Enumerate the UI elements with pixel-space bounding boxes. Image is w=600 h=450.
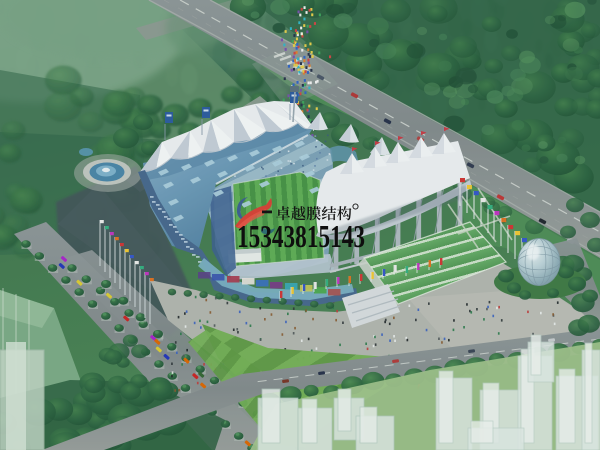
- svg-text:15343815143: 15343815143: [237, 218, 365, 254]
